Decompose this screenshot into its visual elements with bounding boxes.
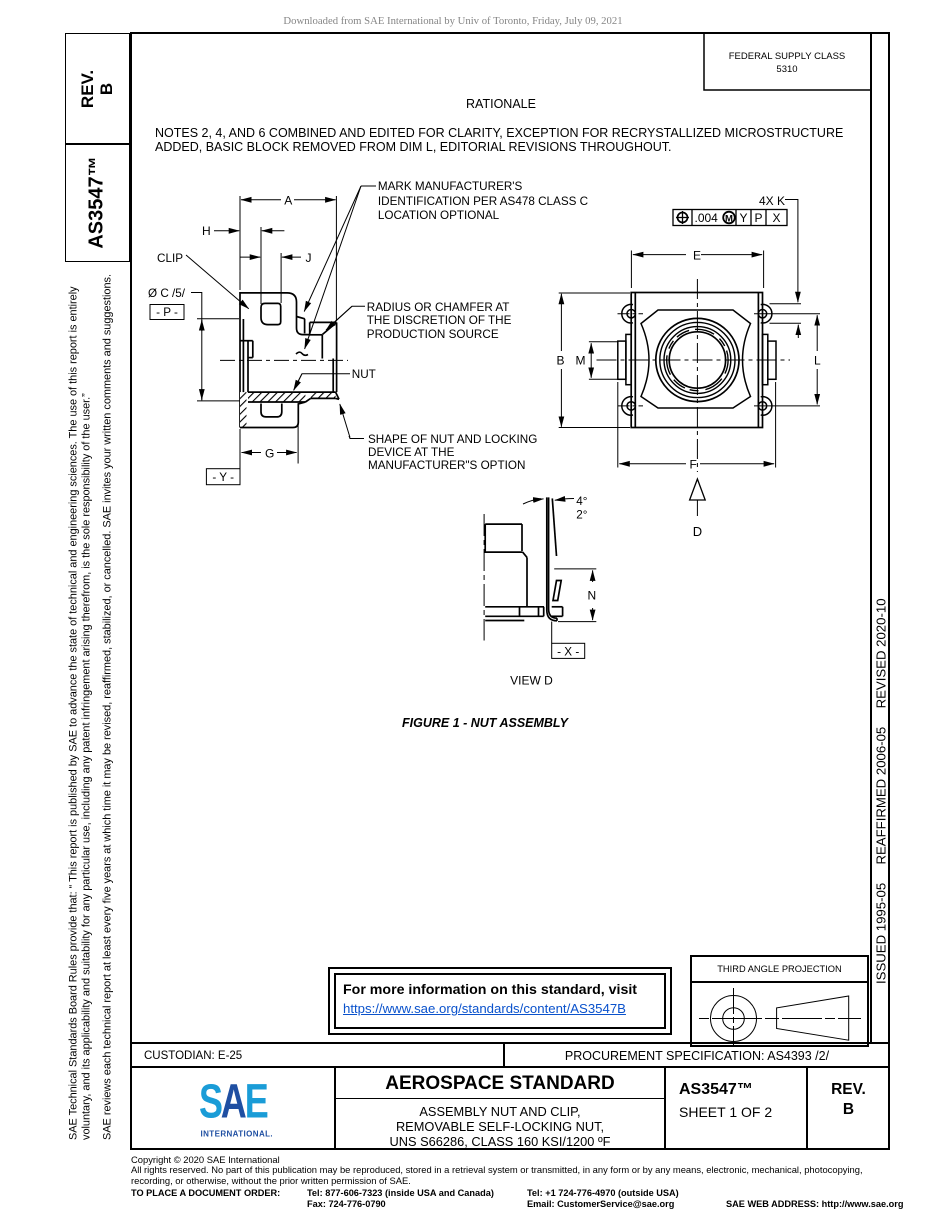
svg-text:- X -: - X - — [557, 645, 579, 658]
svg-text:2°: 2° — [576, 509, 587, 522]
svg-text:NUT: NUT — [352, 368, 376, 381]
svg-text:FIGURE 1 - NUT ASSEMBLY: FIGURE 1 - NUT ASSEMBLY — [402, 716, 570, 730]
svg-text:A: A — [284, 194, 292, 208]
svg-text:D: D — [693, 524, 702, 539]
svg-text:B: B — [557, 354, 565, 368]
svg-text:S: S — [199, 1080, 223, 1128]
svg-text:Y: Y — [739, 211, 747, 225]
svg-text:- P -: - P - — [156, 306, 178, 319]
svg-text:4X K: 4X K — [759, 194, 785, 208]
svg-text:.004: .004 — [695, 211, 719, 225]
svg-text:N: N — [588, 589, 597, 603]
svg-text:4°: 4° — [576, 495, 587, 508]
svg-text:G: G — [265, 446, 274, 460]
svg-text:M: M — [725, 213, 733, 224]
svg-text:E: E — [245, 1080, 269, 1128]
svg-text:E: E — [693, 248, 701, 262]
svg-text:L: L — [814, 354, 821, 368]
svg-text:- Y -: - Y - — [212, 471, 234, 484]
svg-text:P: P — [754, 211, 762, 225]
svg-text:J: J — [306, 251, 312, 265]
svg-text:F: F — [690, 458, 697, 472]
svg-text:INTERNATIONAL.: INTERNATIONAL. — [201, 1130, 273, 1139]
svg-text:M: M — [576, 354, 586, 368]
svg-text:X: X — [772, 211, 780, 225]
svg-text:CLIP: CLIP — [157, 252, 183, 265]
svg-text:A: A — [221, 1080, 247, 1128]
svg-text:VIEW D: VIEW D — [510, 674, 553, 688]
svg-text:Ø C /5/: Ø C /5/ — [148, 287, 186, 300]
svg-text:H: H — [202, 224, 211, 238]
